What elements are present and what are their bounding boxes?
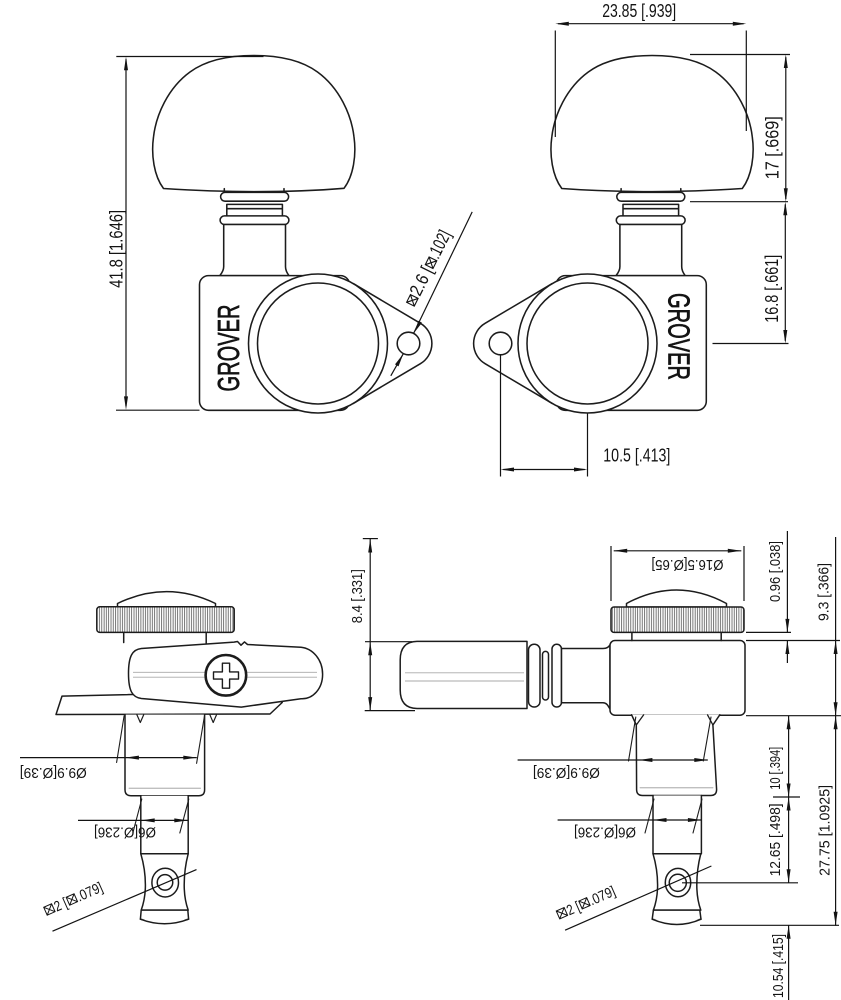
svg-text:Ø6[Ø.236]: Ø6[Ø.236] bbox=[94, 824, 156, 840]
svg-text:10.54 [.415]: 10.54 [.415] bbox=[771, 934, 787, 998]
svg-text:Ø6[Ø.236]: Ø6[Ø.236] bbox=[574, 824, 636, 840]
svg-text:Ø9.9[Ø.39]: Ø9.9[Ø.39] bbox=[533, 764, 600, 780]
svg-text:23.85 [.939]: 23.85 [.939] bbox=[602, 1, 676, 21]
svg-text:27.75 [1.0925]: 27.75 [1.0925] bbox=[818, 785, 834, 876]
svg-text:Ø16.5[Ø.65]: Ø16.5[Ø.65] bbox=[652, 556, 724, 572]
svg-text:9.3 [.366]: 9.3 [.366] bbox=[817, 563, 833, 621]
svg-text:0.96 [.038]: 0.96 [.038] bbox=[768, 541, 784, 602]
svg-text:GROVER: GROVER bbox=[211, 305, 246, 392]
svg-text:16.8 [.661]: 16.8 [.661] bbox=[762, 255, 782, 323]
svg-text:10.5 [.413]: 10.5 [.413] bbox=[603, 446, 670, 466]
svg-text:GROVER: GROVER bbox=[662, 293, 697, 380]
svg-text:8.4 [.331]: 8.4 [.331] bbox=[350, 569, 366, 623]
svg-text:12.65 [.498]: 12.65 [.498] bbox=[768, 803, 784, 876]
svg-text:17 [.669]: 17 [.669] bbox=[763, 116, 783, 179]
svg-text:Ø9.9[Ø.39]: Ø9.9[Ø.39] bbox=[20, 764, 87, 780]
svg-text:41.8 [1.646]: 41.8 [1.646] bbox=[107, 210, 127, 288]
svg-text:10 [.394]: 10 [.394] bbox=[768, 747, 784, 790]
